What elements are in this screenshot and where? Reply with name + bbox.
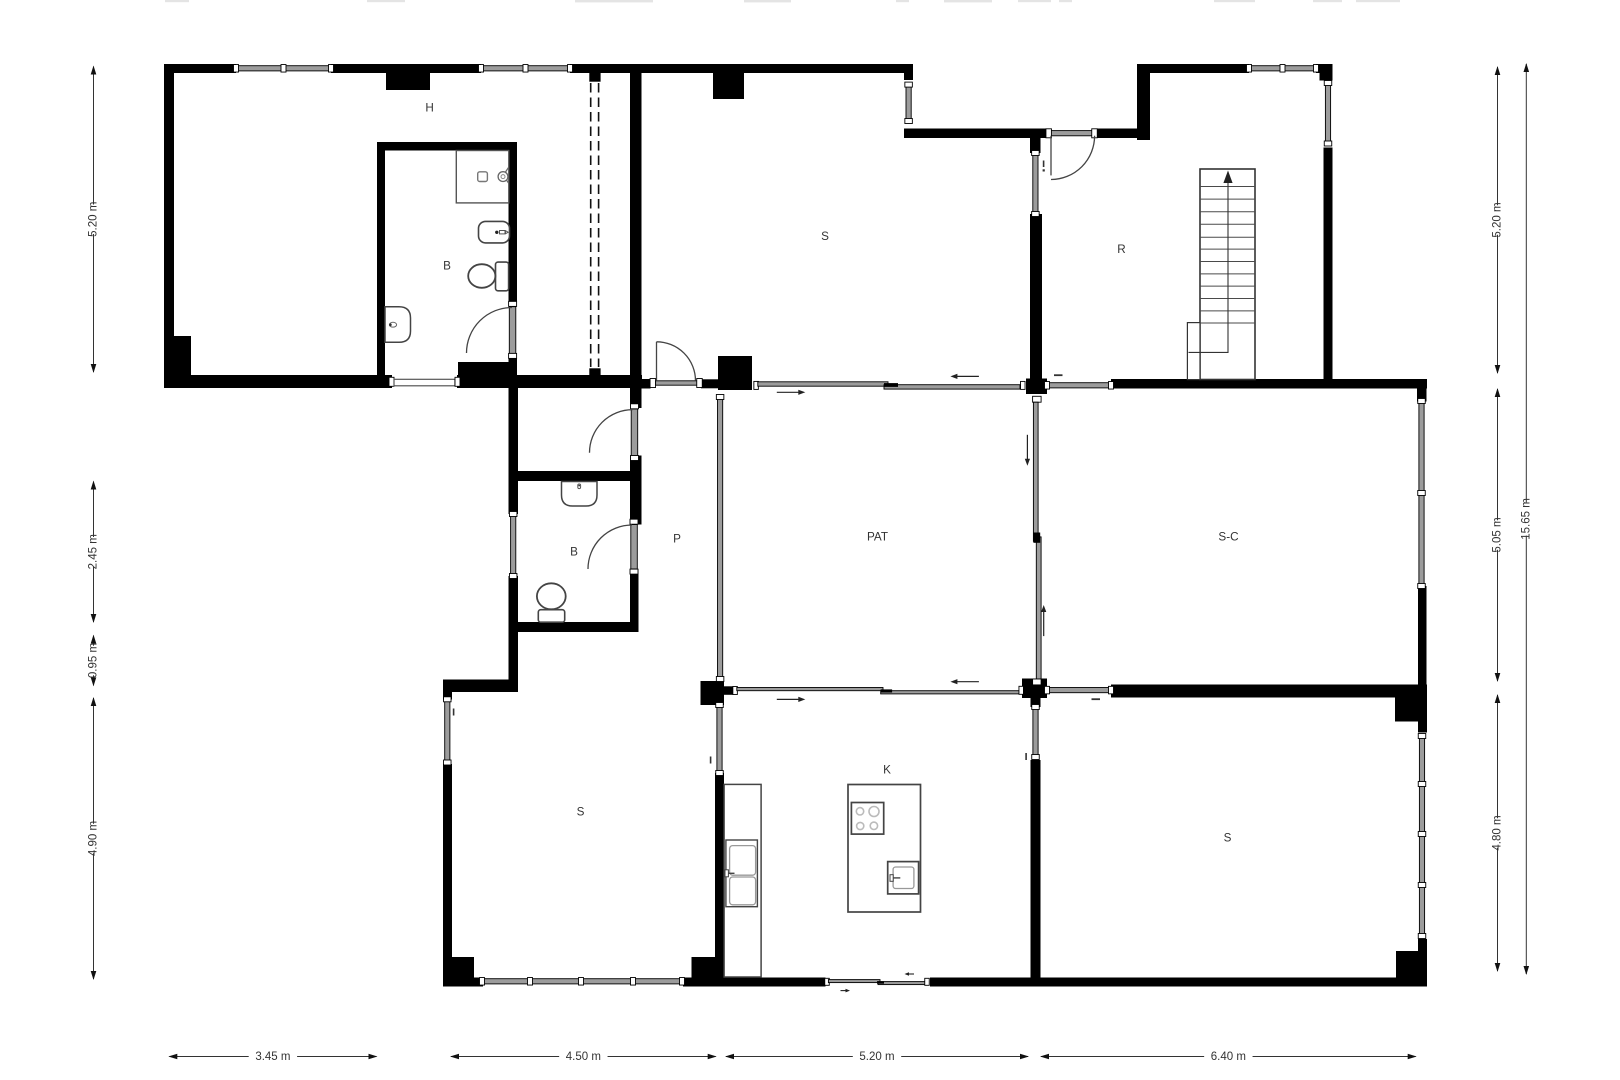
svg-text:S: S	[821, 230, 829, 243]
svg-text:5.20 m: 5.20 m	[88, 202, 100, 237]
svg-text:4.50 m: 4.50 m	[566, 1051, 601, 1063]
svg-text:PAT: PAT	[867, 531, 888, 544]
svg-text:R: R	[1117, 243, 1125, 256]
svg-text:5.20 m: 5.20 m	[1492, 202, 1504, 237]
svg-text:15.65 m: 15.65 m	[1520, 498, 1532, 540]
svg-text:4.90 m: 4.90 m	[88, 821, 100, 856]
svg-text:5.20 m: 5.20 m	[859, 1051, 894, 1063]
svg-text:S: S	[577, 806, 585, 819]
svg-text:2.45 m: 2.45 m	[88, 534, 100, 569]
svg-text:S-C: S-C	[1218, 531, 1238, 544]
svg-text:P: P	[673, 533, 681, 546]
svg-text:3.45 m: 3.45 m	[255, 1051, 290, 1063]
svg-text:H: H	[425, 102, 433, 115]
svg-text:K: K	[883, 764, 891, 777]
svg-text:6.40 m: 6.40 m	[1211, 1051, 1246, 1063]
svg-text:S: S	[1224, 832, 1232, 845]
svg-text:B: B	[570, 546, 578, 559]
svg-text:5.05 m: 5.05 m	[1492, 517, 1504, 552]
svg-text:0.95 m: 0.95 m	[88, 643, 100, 678]
svg-text:4.80 m: 4.80 m	[1492, 815, 1504, 850]
svg-text:B: B	[443, 260, 451, 273]
